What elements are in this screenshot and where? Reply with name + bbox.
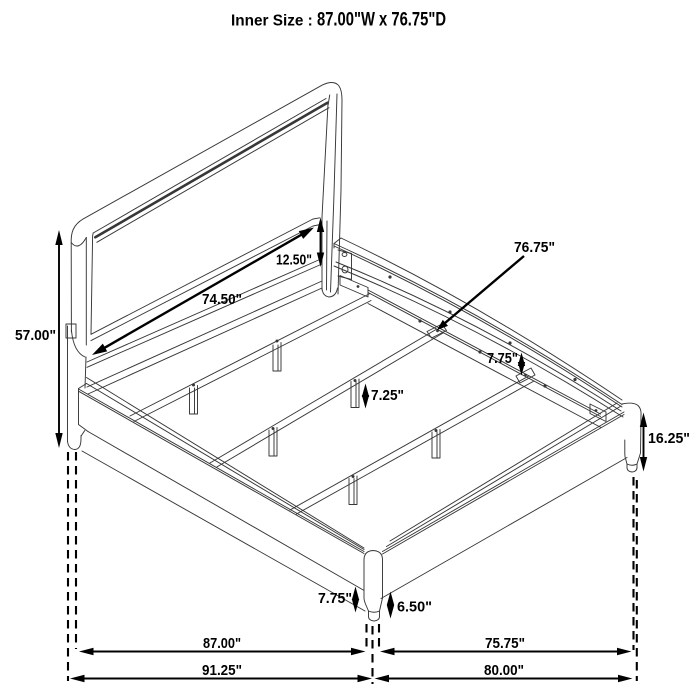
svg-text:16.25": 16.25" <box>648 431 690 447</box>
svg-text:75.75": 75.75" <box>485 636 525 652</box>
svg-text:7.25": 7.25" <box>371 388 404 404</box>
svg-text:7.75": 7.75" <box>487 351 518 367</box>
svg-text:74.50": 74.50" <box>202 292 242 308</box>
svg-text:87.00": 87.00" <box>203 636 241 652</box>
svg-text:6.50": 6.50" <box>397 600 432 616</box>
svg-text:Inner Size : 87.00"W x 76.75"D: Inner Size : 87.00"W x 76.75"D <box>231 9 446 31</box>
svg-text:7.75": 7.75" <box>318 591 352 607</box>
svg-text:12.50": 12.50" <box>276 253 312 269</box>
svg-text:76.75": 76.75" <box>514 240 555 256</box>
svg-text:57.00": 57.00" <box>15 328 56 344</box>
svg-text:91.25": 91.25" <box>202 663 242 679</box>
svg-text:80.00": 80.00" <box>484 663 524 679</box>
